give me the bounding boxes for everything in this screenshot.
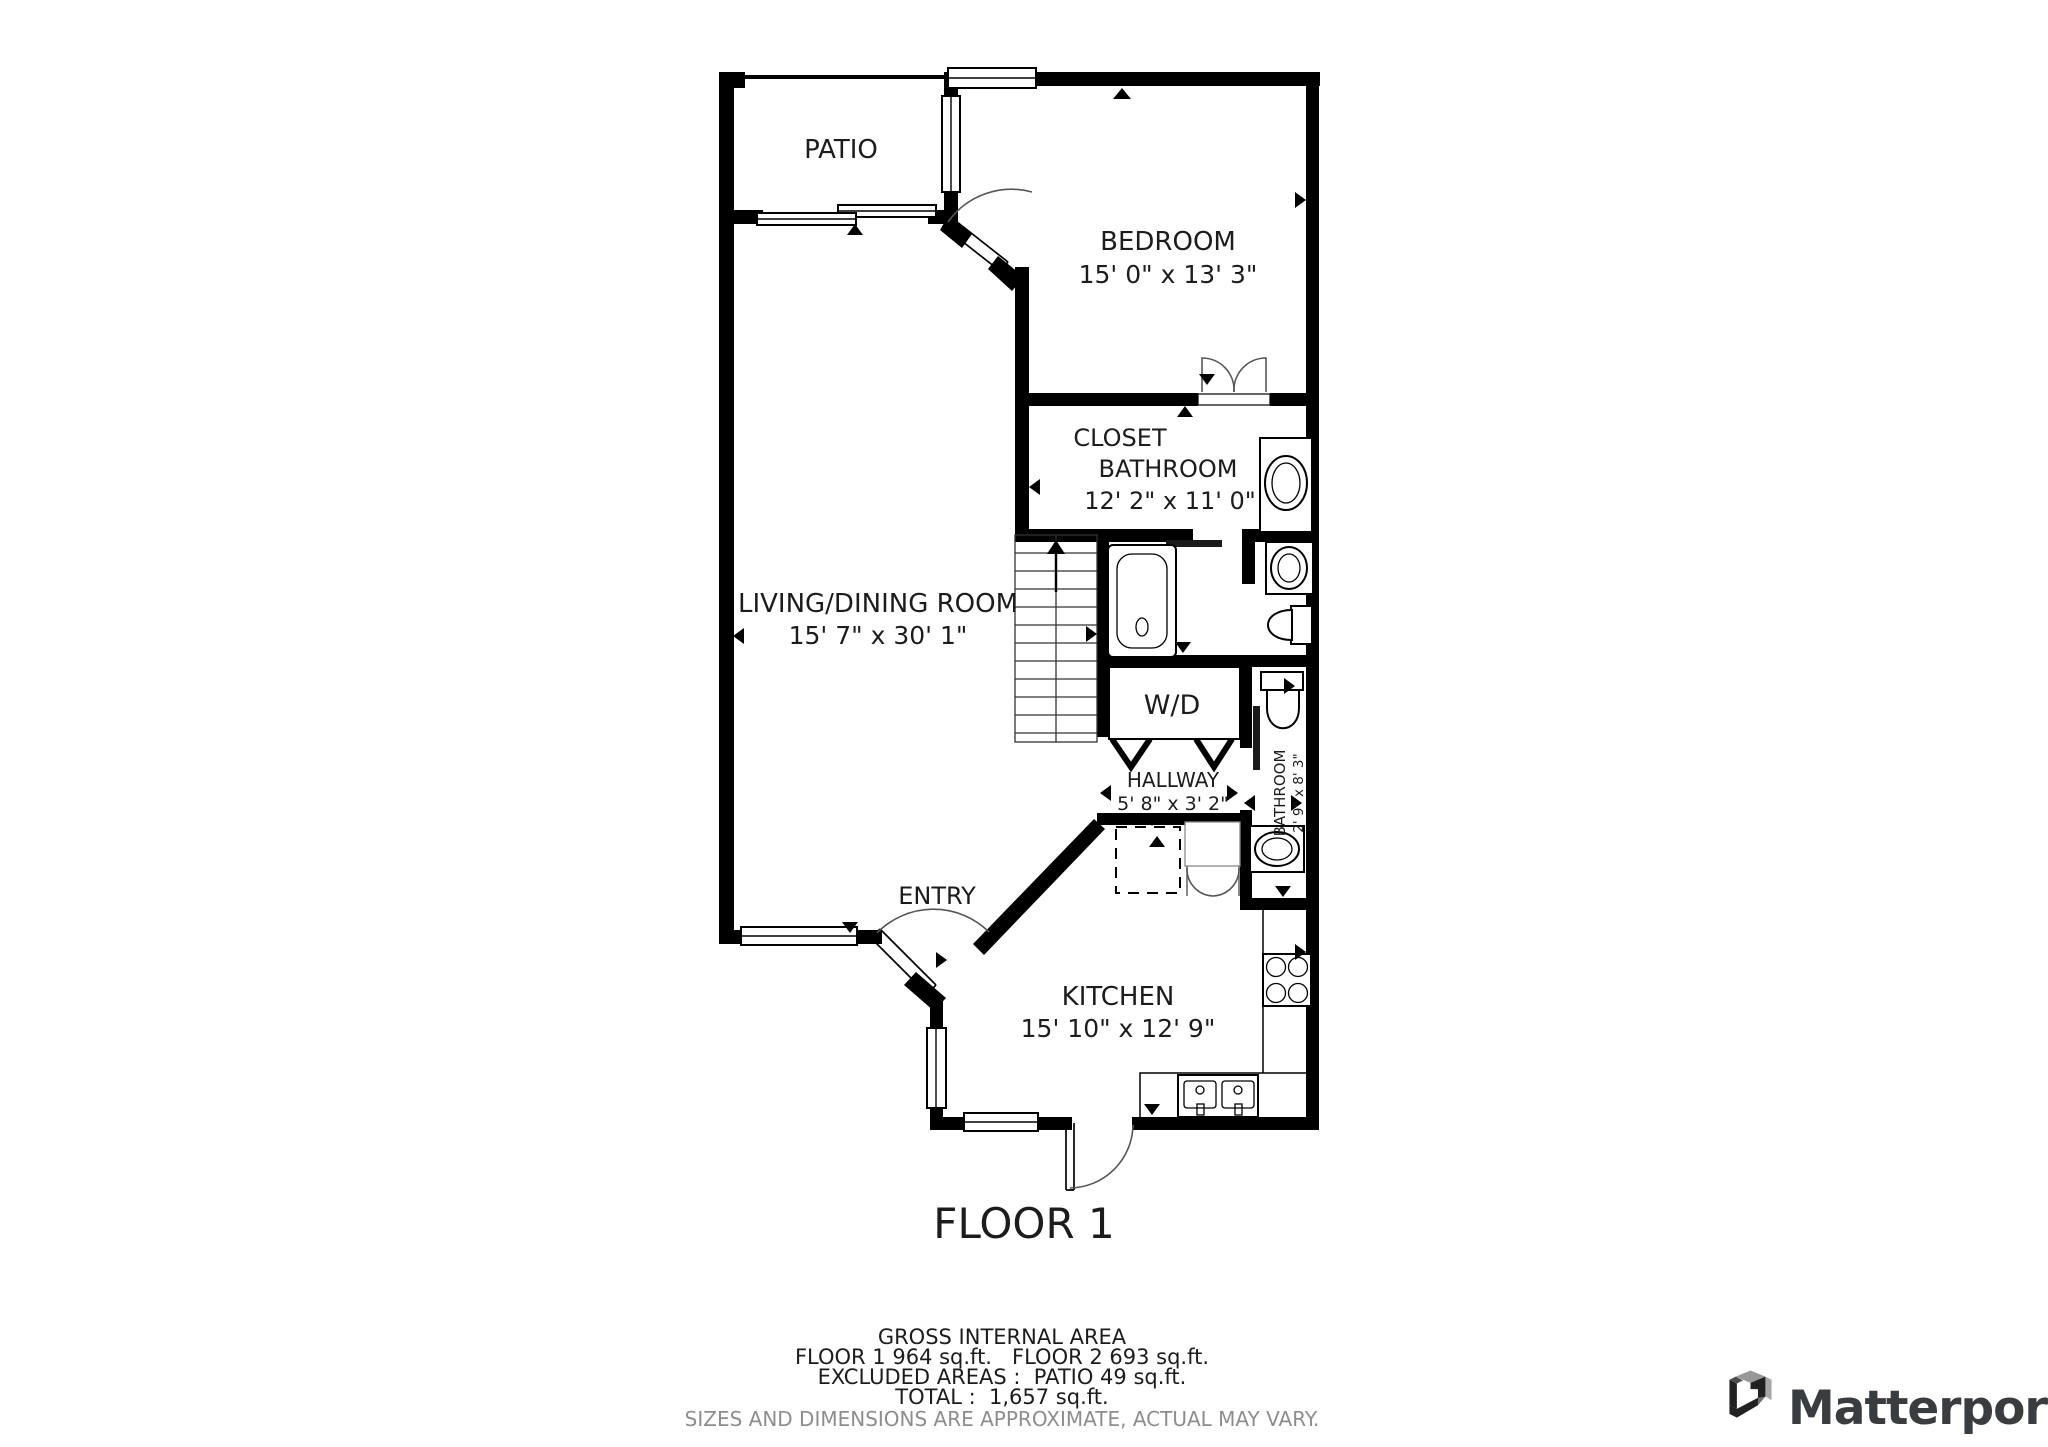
- wd-bifold-doors: [1112, 739, 1232, 767]
- marker-icon: [936, 952, 947, 968]
- marker-icon: [1086, 626, 1097, 642]
- room-label-bathroom-small: BATHROOM: [1271, 750, 1289, 837]
- room-label-entry: ENTRY: [898, 882, 976, 910]
- toilet-main-icon: [1268, 606, 1312, 644]
- floor-title: FLOOR 1: [933, 1199, 1114, 1248]
- patio-sliding-door: [757, 205, 936, 225]
- pantry-doors: [1185, 822, 1240, 896]
- bathtub-icon: [1108, 545, 1176, 657]
- room-label-bathroom-main: BATHROOM: [1099, 455, 1238, 483]
- staircase: [1015, 535, 1097, 742]
- matterport-logo-icon: [1729, 1370, 1771, 1417]
- room-label-hallway: HALLWAY: [1127, 768, 1220, 792]
- room-dims-bathroom-main: 12' 2" x 11' 0": [1084, 487, 1256, 515]
- floor-plan-canvas: PATIO BEDROOM 15' 0" x 13' 3" CLOSET BAT…: [0, 0, 2048, 1447]
- entry-door: [871, 909, 989, 994]
- marker-icon: [733, 628, 744, 644]
- room-label-patio: PATIO: [804, 135, 878, 165]
- marker-icon: [1244, 795, 1255, 811]
- room-dims-hallway: 5' 8" x 3' 2": [1117, 793, 1229, 815]
- bedroom-top-window: [948, 68, 1036, 88]
- matterport-logo-text: Matterport: [1788, 1381, 2048, 1436]
- room-label-closet: CLOSET: [1073, 424, 1167, 452]
- dashed-appliance-icon: [1116, 827, 1180, 893]
- kitchen-double-sink-icon: [1178, 1075, 1258, 1117]
- room-dims-living-dining: 15' 7" x 30' 1": [789, 621, 968, 650]
- vanity-sink-icon: [1260, 438, 1312, 532]
- marker-icon: [1029, 479, 1040, 495]
- room-dims-bathroom-small: 2' 9" x 8' 3": [1291, 753, 1307, 832]
- marker-icon: [1275, 886, 1291, 897]
- marker-icon: [1295, 192, 1306, 208]
- room-label-kitchen: KITCHEN: [1062, 982, 1175, 1012]
- marker-icon: [1177, 406, 1193, 417]
- kitchen-left-window: [927, 1028, 946, 1108]
- marker-icon: [1149, 836, 1165, 847]
- kitchen-bottom-window: [964, 1113, 1038, 1131]
- footer-area-summary: GROSS INTERNAL AREA FLOOR 1 964 sq.ft. F…: [685, 1325, 1320, 1431]
- marker-icon: [1113, 88, 1131, 99]
- room-dims-bedroom: 15' 0" x 13' 3": [1079, 260, 1258, 289]
- marker-icon: [1175, 642, 1191, 653]
- stove-icon: [1263, 954, 1311, 1006]
- living-room-window: [741, 927, 857, 945]
- room-label-wd: W/D: [1144, 690, 1201, 721]
- room-label-bedroom: BEDROOM: [1100, 227, 1236, 257]
- stairs-up-arrow-icon: [1047, 540, 1065, 592]
- matterport-logo: Matterport: [1729, 1370, 2048, 1436]
- disclaimer-text: SIZES AND DIMENSIONS ARE APPROXIMATE, AC…: [685, 1407, 1320, 1431]
- marker-icon: [1100, 785, 1111, 801]
- toilet-small-icon: [1261, 672, 1303, 728]
- kitchen-exterior-door: [1066, 1123, 1133, 1190]
- room-label-living-dining: LIVING/DINING ROOM: [738, 589, 1018, 619]
- total-area-line: TOTAL : 1,657 sq.ft.: [894, 1385, 1108, 1409]
- marker-icon: [1144, 1104, 1160, 1115]
- patio-side-window: [942, 96, 960, 192]
- room-dims-kitchen: 15' 10" x 12' 9": [1021, 1014, 1216, 1043]
- vanity-sink2-icon: [1266, 542, 1313, 594]
